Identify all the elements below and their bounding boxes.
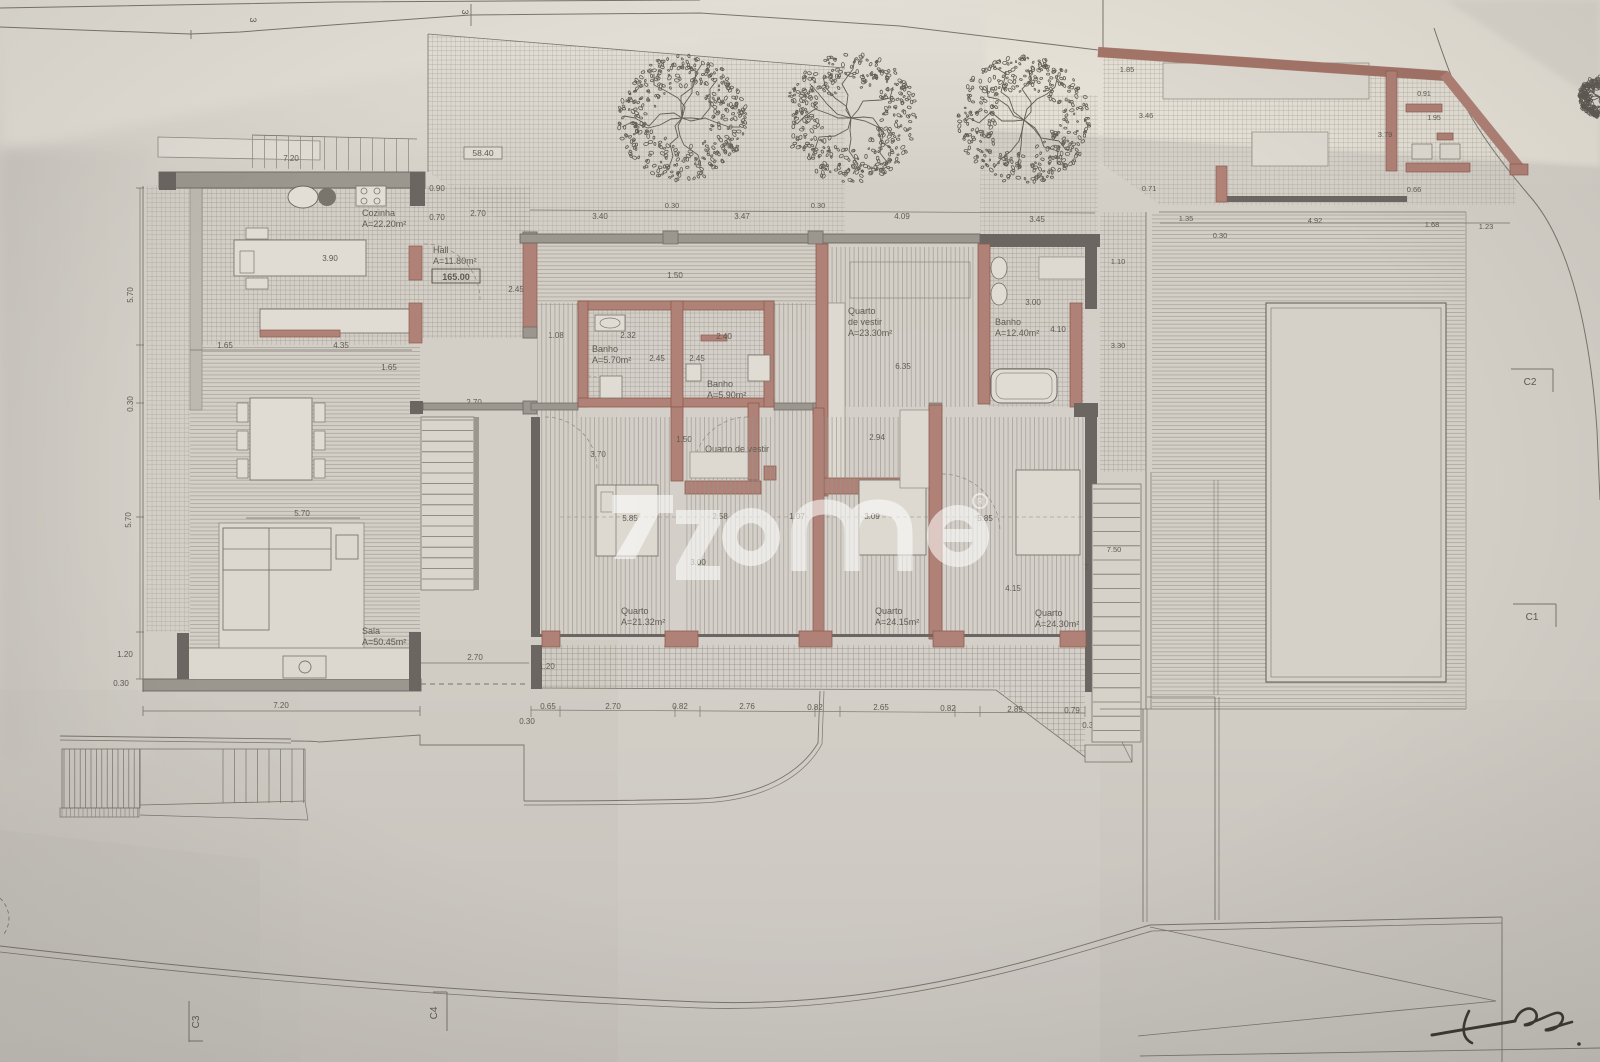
svg-text:R: R <box>977 497 984 507</box>
